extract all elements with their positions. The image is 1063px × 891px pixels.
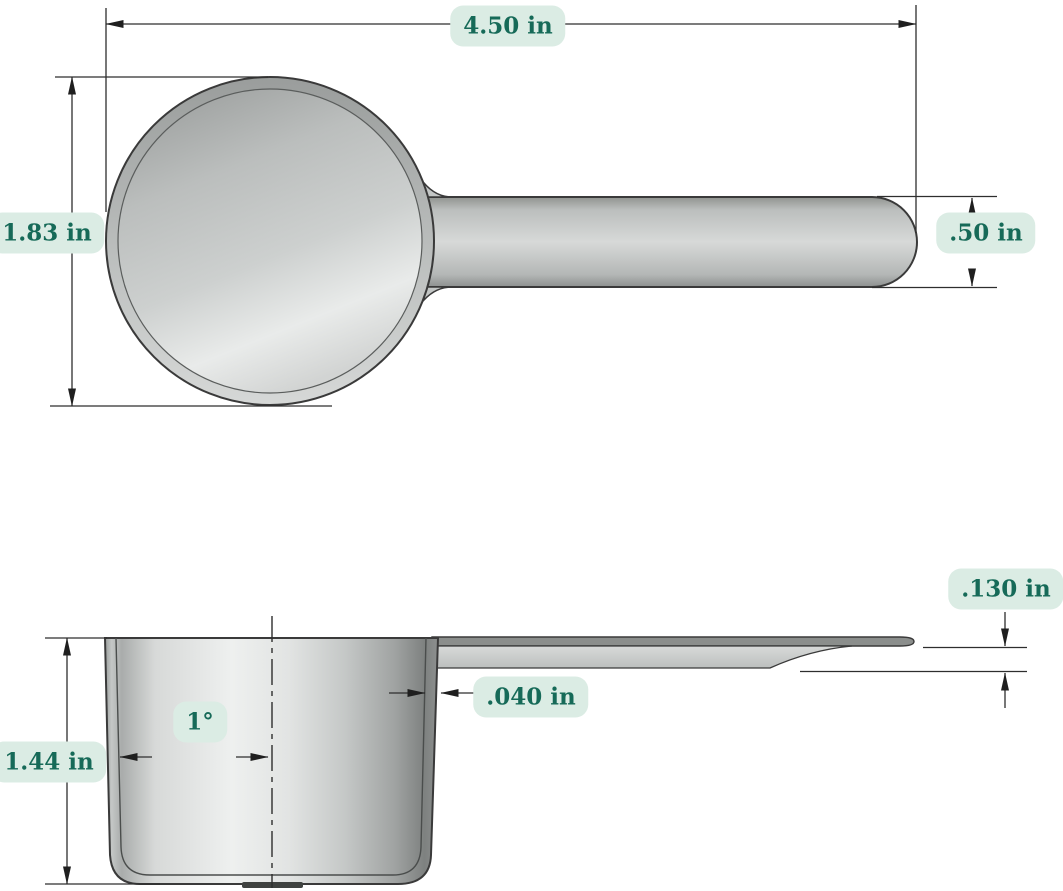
scoop-dimension-drawing	[0, 0, 1063, 891]
handle-side-top-band	[432, 637, 914, 646]
handle-top-view	[424, 197, 917, 287]
dimension-drawing-canvas: 4.50 in 1.83 in .50 in .130 in .040 in 1…	[0, 0, 1063, 891]
dimension-label-overall-length: 4.50 in	[450, 6, 565, 47]
dim-handle-thickness-lines	[800, 612, 1027, 708]
dimension-label-bowl-height: 1.44 in	[0, 742, 107, 783]
dimension-label-handle-thickness: .130 in	[948, 569, 1063, 610]
dimension-label-bowl-diameter: 1.83 in	[0, 213, 105, 254]
scoop-side-view	[105, 616, 914, 888]
dimension-label-wall-thickness: .040 in	[473, 677, 588, 718]
dimension-label-handle-width: .50 in	[936, 213, 1035, 254]
dimension-label-draft-angle: 1°	[173, 702, 227, 743]
handle-side-underside	[437, 646, 852, 668]
bowl-interior-top-view	[118, 89, 422, 393]
scoop-top-view	[106, 77, 917, 405]
handle-fillet-bottom	[424, 287, 452, 300]
